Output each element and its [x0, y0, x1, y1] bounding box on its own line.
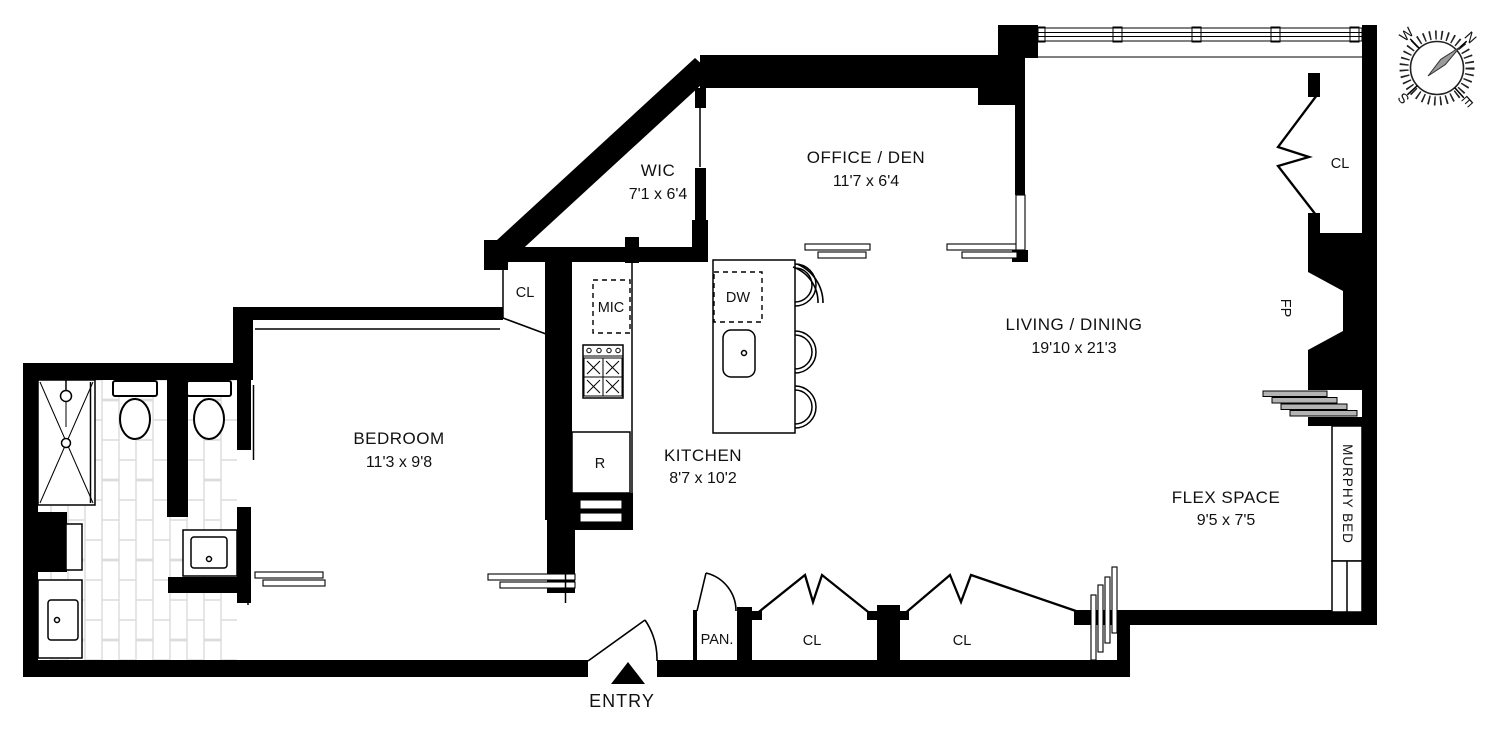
floor-plan: WIC 7'1 x 6'4 OFFICE / DEN 11'7 x 6'4 LI…	[0, 0, 1500, 737]
vanity-sink-1	[38, 580, 82, 658]
kitchen-island	[713, 260, 795, 433]
office-vents	[805, 195, 1025, 258]
murphy-bed-label: MURPHY BED	[1340, 444, 1355, 544]
labels: WIC 7'1 x 6'4 OFFICE / DEN 11'7 x 6'4 LI…	[353, 148, 1355, 711]
window-band-north	[1036, 27, 1362, 57]
office-den-label: OFFICE / DEN	[807, 148, 925, 167]
floor-plan-page: WIC 7'1 x 6'4 OFFICE / DEN 11'7 x 6'4 LI…	[0, 0, 1500, 737]
living-dining-dims: 19'10 x 21'3	[1031, 340, 1116, 357]
closet-door	[503, 318, 546, 334]
shower	[38, 380, 95, 505]
closet-hall-right-label: CL	[953, 633, 972, 649]
wic-dims: 7'1 x 6'4	[629, 186, 688, 203]
entry-arrow-icon	[611, 662, 645, 684]
dishwasher-label: DW	[726, 290, 750, 306]
wic-label: WIC	[641, 161, 676, 180]
ptac-unit	[1263, 391, 1357, 416]
linen-cabinet	[66, 524, 82, 570]
microwave-label: MIC	[598, 300, 625, 316]
closet-hall-left-label: CL	[803, 633, 822, 649]
compass-w: W	[1396, 23, 1417, 44]
vanity-sink-2	[183, 530, 237, 576]
bedroom-radiators	[255, 572, 575, 588]
fireplace-label: FP	[1277, 299, 1293, 318]
flex-space-label: FLEX SPACE	[1172, 488, 1281, 507]
pantry-door	[697, 573, 736, 611]
kitchen-dims: 8'7 x 10'2	[669, 470, 737, 487]
office-door-swing	[793, 264, 823, 303]
bar-stools	[795, 264, 816, 428]
entry-door	[588, 620, 657, 661]
closet-bifold-left	[755, 575, 872, 615]
shower-head-icon	[61, 391, 72, 402]
refrigerator-label: R	[595, 456, 605, 472]
compass-rose: N E S W	[1394, 23, 1480, 110]
closet-bifold-right	[903, 575, 1076, 615]
flex-space-dims: 9'5 x 7'5	[1197, 512, 1256, 529]
kitchen-label: KITCHEN	[664, 446, 742, 465]
entry-label: ENTRY	[589, 691, 655, 711]
office-den-dims: 11'7 x 6'4	[833, 173, 899, 190]
bedroom-label: BEDROOM	[353, 429, 444, 448]
pantry-label: PAN.	[701, 632, 734, 648]
closet-bedroom-label: CL	[516, 285, 535, 301]
island-sink	[723, 330, 755, 377]
stove	[583, 345, 623, 398]
closet-upper-right-label: CL	[1331, 156, 1350, 172]
closet-bifold-upper-right	[1278, 95, 1317, 215]
bedroom-dims: 11'3 x 9'8	[366, 454, 432, 471]
living-dining-label: LIVING / DINING	[1006, 315, 1143, 334]
